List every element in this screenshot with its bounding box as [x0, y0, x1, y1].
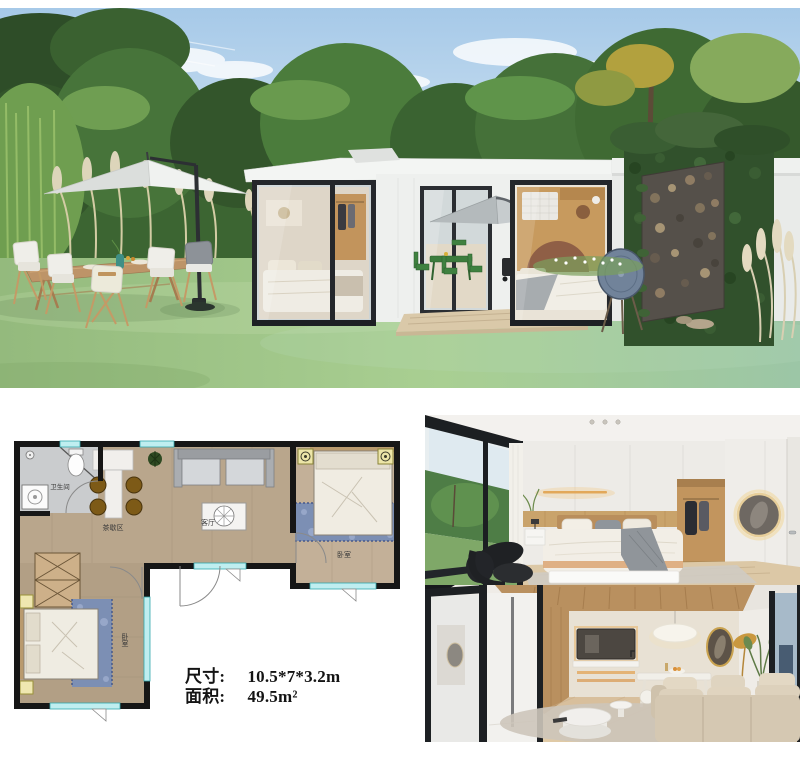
vanity-counter [573, 661, 639, 667]
led-wall-light [535, 487, 615, 499]
vanity-mirror [573, 627, 639, 682]
wood-column [543, 605, 569, 715]
bedroom-photo [425, 415, 800, 585]
bedroom-left-label: 卧室 [121, 633, 129, 647]
living-room-label: 客厅 [201, 518, 215, 527]
sofa [651, 673, 800, 742]
living-photo [425, 585, 800, 742]
exterior-photo-canvas [0, 8, 800, 388]
nightstand [20, 681, 33, 694]
bedroom-photo-canvas [425, 415, 800, 585]
living-photo-canvas [425, 585, 800, 742]
wardrobe-nook [677, 479, 725, 571]
specs-block: 尺寸: 10.5*7*3.2m 面积: 49.5m² [185, 667, 340, 707]
door-handle [789, 531, 796, 534]
dimensions-row: 尺寸: 10.5*7*3.2m [185, 667, 340, 687]
washing-machine [22, 485, 48, 509]
hanging-clothes [685, 501, 697, 535]
headboard [20, 609, 24, 679]
exterior-photo [0, 8, 800, 388]
photo-collage-panel [634, 162, 724, 322]
door [787, 437, 800, 585]
table-lamp [531, 519, 539, 524]
bathroom-label: 卫生间 [50, 482, 70, 491]
wardrobe-boxes [35, 553, 80, 607]
nightstand [20, 595, 33, 608]
dimensions-label: 尺寸: [185, 667, 239, 687]
dimensions-value: 10.5*7*3.2m [247, 667, 340, 686]
bedroom-right-label: 卧室 [337, 550, 351, 559]
product-detail-image: 卫生间 茶歇区 客厅 卧室 卧室 尺寸: 10.5*7*3.2m 面积: 49.… [0, 0, 800, 765]
left-glass-bedroom [252, 180, 376, 326]
area-value: 49.5m² [247, 687, 297, 706]
tea-area-label: 茶歇区 [103, 523, 124, 532]
round-mirror [735, 491, 783, 539]
oval-wall-art [707, 628, 733, 666]
area-label: 面积: [185, 687, 239, 707]
area-row: 面积: 49.5m² [185, 687, 340, 707]
toilet [68, 449, 84, 476]
shower-drain [26, 451, 34, 459]
right-glass-bedroom [510, 180, 612, 326]
bedroom-left-furniture [20, 595, 112, 694]
hanging-clothes [338, 204, 346, 230]
